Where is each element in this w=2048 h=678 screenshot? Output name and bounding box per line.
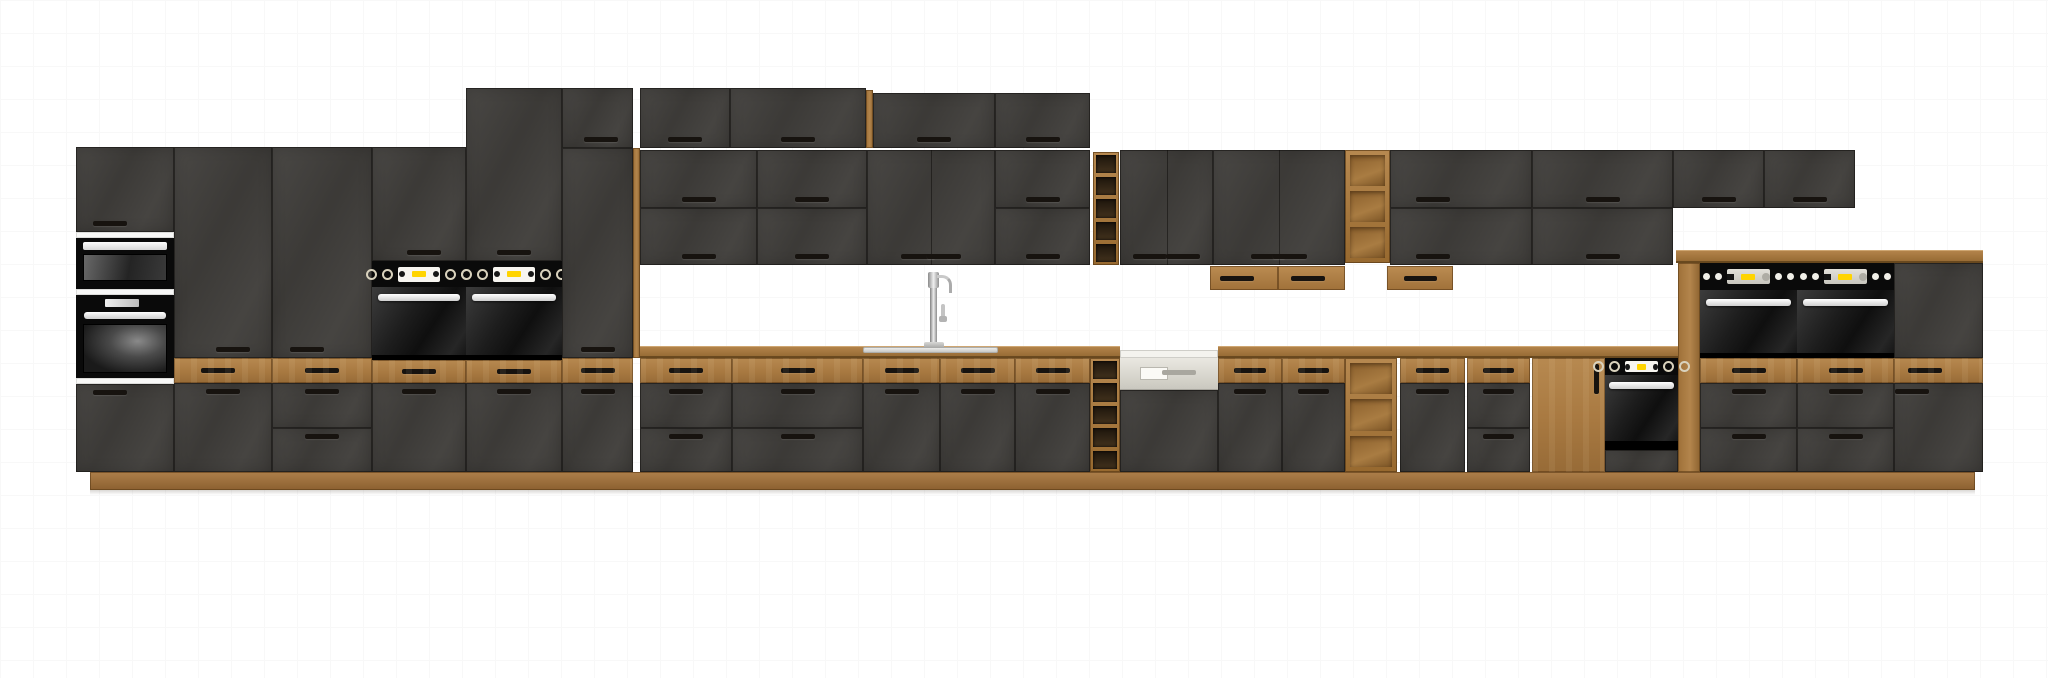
tall-unit-2-oak-drawer [174, 358, 272, 383]
wall-open-shelf [1345, 150, 1390, 263]
tall-unit-3-drawer-2-handle [305, 434, 339, 439]
oven-display [1824, 269, 1867, 284]
oven-control-panel [466, 261, 562, 287]
tall-unit-3-drawer-1 [272, 383, 372, 428]
wall-cabinet-8-lower-flap [1532, 208, 1673, 265]
short-wall-cabinet-1-handle [1702, 197, 1736, 202]
base-cabinet-4-door [1400, 383, 1465, 472]
kitchen-product-image [0, 0, 2048, 678]
dishwasher-furniture-panel [1120, 390, 1218, 472]
oven-tower-2-oak-drawer-handle [497, 369, 531, 374]
wall-wine-rack [1093, 152, 1119, 265]
base-open-shelf [1345, 358, 1397, 472]
raised-block-drawer-2b [1797, 428, 1894, 472]
raised-block-oak-drawer-3 [1894, 358, 1983, 383]
wall-cabinet-2-lower-flap [757, 208, 867, 265]
base-drawer-unit-1-oak-drawer [640, 358, 732, 383]
oven-display [1625, 361, 1657, 372]
tall-unit-1-upper-door [76, 147, 174, 232]
side-panel-tall-block [633, 148, 640, 358]
oven-knob-icon [1884, 273, 1891, 280]
raised-block-drawer-1b-handle [1732, 434, 1766, 439]
base-drawer-unit-5-drawer-3 [1467, 428, 1530, 472]
wall-cabinet-1-lower-flap-handle [682, 254, 716, 259]
oven-knob-icon [366, 269, 377, 280]
tall-unit-4-top-box [562, 88, 633, 148]
sink-cabinet-oak-drawer-2-handle [961, 368, 995, 373]
plinth [90, 472, 1975, 490]
tall-unit-4-oak-drawer [562, 358, 633, 383]
base-wine-rack-compartment [1093, 428, 1117, 446]
base-drawer-unit-1-drawer-2 [640, 383, 732, 428]
sink-cabinet-door-2-handle [961, 389, 995, 394]
top-box-2-handle [781, 137, 815, 142]
base-cabinet-3-oak-drawer-1-handle [1234, 368, 1266, 373]
display-dial [1762, 273, 1770, 281]
raised-block-side-door [1894, 263, 1983, 358]
faucet-spout [937, 275, 952, 293]
base-wine-rack-compartment [1093, 406, 1117, 424]
oven-knob-icon [1609, 361, 1620, 372]
top-box-1 [640, 88, 730, 148]
tall-unit-4-top-box-handle [584, 137, 618, 142]
base-drawer-unit-1-drawer-2-handle [669, 389, 703, 394]
wall-cabinet-6-double-door [1213, 150, 1345, 265]
raised-block-oak-drawer-2-handle [1829, 368, 1863, 373]
built-in-oven-2 [466, 261, 562, 360]
tall-unit-1-bottom-drawer-handle [93, 390, 127, 395]
wall-cabinet-1-upper-flap-handle [682, 197, 716, 202]
oven-knob-icon [1800, 273, 1807, 280]
sink-cabinet-oak-drawer-2 [940, 358, 1015, 383]
base-drawer-unit-2-drawer-3 [732, 428, 863, 472]
display-dot [433, 271, 439, 277]
base-cabinet-3-door-1-handle [1234, 389, 1266, 394]
oven-knob-icon [1872, 273, 1879, 280]
base-wine-rack [1090, 358, 1120, 472]
under-cabinet-oak-drawer-2 [1278, 266, 1345, 290]
oven-knob-icon [1703, 273, 1710, 280]
raised-block-drawer-2a [1797, 383, 1894, 428]
wall-cabinet-5-double-door-seam [1167, 150, 1168, 265]
base-open-shelf-compartment [1350, 436, 1392, 467]
raised-block-oak-drawer-2 [1797, 358, 1894, 383]
sink-cabinet-door-2 [940, 383, 1015, 472]
wall-cabinet-7-upper-flap [1390, 150, 1532, 208]
raised-block-drawer-1a-handle [1732, 389, 1766, 394]
oven-handle-bar [1706, 299, 1791, 306]
display-dot [399, 271, 405, 277]
oven-handle-bar [472, 294, 557, 301]
oven-handle-bar [84, 312, 166, 319]
oven-control-panel [1700, 263, 1797, 290]
under-counter-oven [1605, 358, 1678, 450]
sink-cabinet-door-3-handle [1036, 389, 1070, 394]
oven-tower-2-upper-door-handle [497, 250, 531, 255]
base-cabinet-3-door-2-handle [1298, 389, 1330, 394]
tall-unit-4-oak-drawer-handle [581, 368, 615, 373]
oven-tower-2-oak-drawer [466, 360, 562, 383]
wall-cabinet-8-upper-flap [1532, 150, 1673, 208]
base-drawer-unit-2-drawer-3-handle [781, 434, 815, 439]
sink-cabinet-oak-drawer-3-handle [1036, 368, 1070, 373]
raised-block-oak-drawer-1 [1700, 358, 1797, 383]
wall-cabinet-1-upper-flap [640, 150, 757, 208]
tall-unit-2-lower-door [174, 383, 272, 472]
raised-block-end-door-handle [1895, 389, 1929, 394]
wall-open-shelf-compartment [1350, 155, 1385, 186]
wall-wine-rack-compartment [1096, 244, 1116, 262]
base-cabinet-3-oak-drawer-2-handle [1298, 368, 1330, 373]
top-box-3 [873, 93, 995, 148]
raised-block-drawer-1a [1700, 383, 1797, 428]
oven-glass [83, 324, 167, 373]
wall-open-shelf-compartment [1350, 227, 1385, 258]
base-drawer-unit-5-oak-drawer-handle [1483, 368, 1515, 373]
base-cabinet-3-door-2 [1282, 383, 1345, 472]
tall-unit-1-upper-door-handle [93, 221, 127, 226]
wall-cabinet-7-lower-flap-handle [1416, 254, 1450, 259]
dishwasher-handle-recess [1162, 370, 1196, 375]
under-cabinet-oak-drawer-1 [1210, 266, 1278, 290]
base-cabinet-3-door-1 [1218, 383, 1282, 472]
raised-block-drawer-1b [1700, 428, 1797, 472]
wall-cabinet-5-double-door-handle [1166, 254, 1200, 259]
worktop-right [1218, 346, 1678, 358]
raised-block-oak-drawer-3-handle [1908, 368, 1942, 373]
oven-control-panel [1797, 263, 1894, 290]
raised-built-in-oven-1 [1700, 263, 1797, 358]
display-dot [494, 271, 500, 277]
oak-door-base-cabinet [1532, 358, 1605, 472]
raised-block-end-door [1894, 383, 1983, 472]
oven-display [1727, 269, 1770, 284]
base-drawer-unit-5-oak-drawer [1467, 358, 1530, 383]
display-yellow-segment [412, 271, 426, 277]
under-cabinet-oak-drawer-2-handle [1291, 276, 1325, 281]
display-yellow-segment [507, 271, 521, 277]
wall-cabinet-4-upper-flap [995, 150, 1090, 208]
dishwasher-top-rim [1120, 350, 1218, 358]
oven-display [105, 299, 139, 307]
display-dial [1859, 273, 1867, 281]
wall-cabinet-5-double-door [1120, 150, 1213, 265]
base-drawer-unit-1-drawer-3 [640, 428, 732, 472]
sink-cabinet-door-3 [1015, 383, 1090, 472]
short-wall-cabinet-2 [1764, 150, 1855, 208]
oven-door [1797, 290, 1894, 353]
wall-cabinet-6-double-door-handle [1273, 254, 1307, 259]
oven-knob-icon [1775, 273, 1782, 280]
wall-cabinet-8-lower-flap-handle [1586, 254, 1620, 259]
display-yellow-segment [1637, 364, 1647, 370]
wall-cabinet-7-lower-flap [1390, 208, 1532, 265]
base-drawer-unit-2-oak-drawer [732, 358, 863, 383]
short-wall-cabinet-2-handle [1793, 197, 1827, 202]
base-cabinet-3-oak-drawer-1 [1218, 358, 1282, 383]
faucet-col [930, 285, 937, 343]
sink-cabinet-door-1 [863, 383, 940, 472]
display-dot [1653, 364, 1657, 370]
microwave-glass [83, 254, 167, 281]
floor-shadow [90, 490, 1975, 495]
under-cabinet-oak-drawer-3-handle [1404, 276, 1437, 281]
oven-base-strip [1605, 441, 1678, 450]
oven-knob-icon [382, 269, 393, 280]
oven-knob-icon [445, 269, 456, 280]
tall-unit-3-oak-drawer-handle [305, 368, 339, 373]
tall-unit-4-door-handle [581, 347, 615, 352]
oven-knob-icon [540, 269, 551, 280]
wall-cabinet-4-upper-flap-handle [1026, 197, 1060, 202]
faucet-knob [939, 316, 947, 322]
raised-block-drawer-2a-handle [1829, 389, 1863, 394]
oven-knob-icon [1812, 273, 1819, 280]
oven-control-panel [372, 261, 466, 287]
wall-cabinet-4-lower-flap [995, 208, 1090, 265]
display-yellow-segment [1838, 274, 1852, 280]
wall-wine-rack-compartment [1096, 199, 1116, 217]
wall-cabinet-6-double-door-seam [1279, 150, 1280, 265]
display-dot [528, 271, 534, 277]
base-cabinet-4-oak-drawer-handle [1416, 368, 1449, 373]
tall-unit-1-bottom-drawer [76, 384, 174, 472]
wall-cabinet-7-upper-flap-handle [1416, 197, 1450, 202]
base-drawer-unit-5-drawer-3-handle [1483, 434, 1515, 439]
tall-unit-2-door-handle [216, 347, 250, 352]
wall-wine-rack-compartment [1096, 177, 1116, 195]
base-drawer-unit-2-oak-drawer-handle [781, 368, 815, 373]
base-drawer-unit-5-drawer-2-handle [1483, 389, 1515, 394]
dishwasher [1120, 350, 1218, 472]
oven-door [1700, 290, 1797, 353]
tall-unit-4-lower-door-handle [581, 389, 615, 394]
sink-cabinet-oak-drawer-3 [1015, 358, 1090, 383]
base-cabinet-3-oak-drawer-2 [1282, 358, 1345, 383]
oven-knob-icon [1787, 273, 1794, 280]
oven-knob-icon [1663, 361, 1674, 372]
tall-unit-2-lower-door-handle [206, 389, 240, 394]
base-wine-rack-compartment [1093, 383, 1117, 401]
oven-tower-2-upper-door [466, 88, 562, 261]
base-open-shelf-compartment [1350, 363, 1392, 394]
wall-cabinet-3-double-door-handle [927, 254, 961, 259]
oven-tower-1-lower-door [372, 383, 466, 472]
side-panel-top-row [866, 90, 873, 148]
top-box-4 [995, 93, 1090, 148]
oven-display [493, 267, 535, 282]
oven-tower-1-upper-door [372, 147, 466, 261]
raised-block-drawer-2b-handle [1829, 434, 1863, 439]
raised-block-oak-drawer-1-handle [1732, 368, 1766, 373]
oven-control-panel [1605, 358, 1678, 375]
wall-cabinet-4-lower-flap-handle [1026, 254, 1060, 259]
oven-tower-1-lower-door-handle [402, 389, 436, 394]
oven-tower-2-lower-door-handle [497, 389, 531, 394]
short-wall-cabinet-1 [1673, 150, 1764, 208]
tall-unit-3-oak-drawer [272, 358, 372, 383]
base-open-shelf-compartment [1350, 399, 1392, 430]
display-yellow-segment [1741, 274, 1755, 280]
wall-cabinet-2-upper-flap-handle [795, 197, 829, 202]
top-box-2 [730, 88, 866, 148]
oven-tower-1-oak-drawer [372, 360, 466, 383]
top-box-1-handle [668, 137, 702, 142]
tall-unit-2-oak-drawer-handle [201, 368, 235, 373]
oven-tower-1-oak-drawer-handle [402, 369, 436, 374]
raised-counter [1676, 250, 1983, 263]
oven-display [398, 267, 439, 282]
tall-unit-4-lower-door [562, 383, 633, 472]
oven-handle-bar [1803, 299, 1888, 306]
wall-cabinet-5-double-door-handle [1133, 254, 1167, 259]
oven-knob-icon [461, 269, 472, 280]
display-segment [1727, 274, 1734, 280]
wall-cabinet-1-lower-flap [640, 208, 757, 265]
under-cabinet-oak-drawer-1-handle [1220, 276, 1254, 281]
wall-cabinet-2-upper-flap [757, 150, 867, 208]
base-drawer-unit-1-drawer-3-handle [669, 434, 703, 439]
display-dot [1625, 364, 1629, 370]
wall-wine-rack-compartment [1096, 155, 1116, 173]
oven-knob-icon [477, 269, 488, 280]
oven-tower-2-lower-door [466, 383, 562, 472]
microwave-handle-bar [83, 242, 167, 250]
base-drawer-unit-2-drawer-2 [732, 383, 863, 428]
base-drawer-unit-2-drawer-2-handle [781, 389, 815, 394]
display-segment [1824, 274, 1831, 280]
base-wine-rack-compartment [1093, 451, 1117, 469]
base-cabinet-4-door-handle [1416, 389, 1449, 394]
wall-open-shelf-compartment [1350, 191, 1385, 222]
sink-cabinet-oak-drawer-1-handle [885, 368, 919, 373]
built-in-oven-1 [372, 261, 466, 360]
sink-cabinet-oak-drawer-1 [863, 358, 940, 383]
built-in-microwave [76, 238, 174, 289]
wall-cabinet-3-double-door-seam [931, 150, 932, 265]
oven-door [466, 287, 562, 355]
wall-cabinet-3-double-door [867, 150, 995, 265]
oven-door [372, 287, 466, 355]
base-drawer-unit-5-drawer-2 [1467, 383, 1530, 428]
under-counter-oven-drawer [1605, 450, 1678, 472]
oven-handle-bar [1609, 382, 1673, 389]
base-drawer-unit-1-oak-drawer-handle [669, 368, 703, 373]
tall-unit-3-drawer-1-handle [305, 389, 339, 394]
tall-unit-2-door [174, 147, 272, 358]
raised-built-in-oven-2 [1797, 263, 1894, 358]
under-cabinet-oak-drawer-3 [1387, 266, 1453, 290]
oven-knob-icon [1679, 361, 1690, 372]
top-box-4-handle [1026, 137, 1060, 142]
oven-door [1605, 375, 1678, 441]
oven-knob-icon [1715, 273, 1722, 280]
base-cabinet-4-oak-drawer [1400, 358, 1465, 383]
dishwasher-control-band [1120, 358, 1218, 390]
tall-unit-3-drawer-2 [272, 428, 372, 472]
built-in-oven-left-tower [76, 295, 174, 378]
wall-cabinet-2-lower-flap-handle [795, 254, 829, 259]
faucet-base [924, 342, 944, 348]
faucet [916, 268, 952, 348]
tall-unit-4-door [562, 148, 633, 358]
oven-handle-bar [378, 294, 461, 301]
wall-wine-rack-compartment [1096, 222, 1116, 240]
top-box-3-handle [917, 137, 951, 142]
tall-unit-3-door [272, 147, 372, 358]
tall-unit-3-door-handle [290, 347, 324, 352]
base-wine-rack-compartment [1093, 361, 1117, 379]
oven-tower-1-upper-door-handle [407, 250, 441, 255]
wall-cabinet-8-upper-flap-handle [1586, 197, 1620, 202]
sink-cabinet-door-1-handle [885, 389, 919, 394]
